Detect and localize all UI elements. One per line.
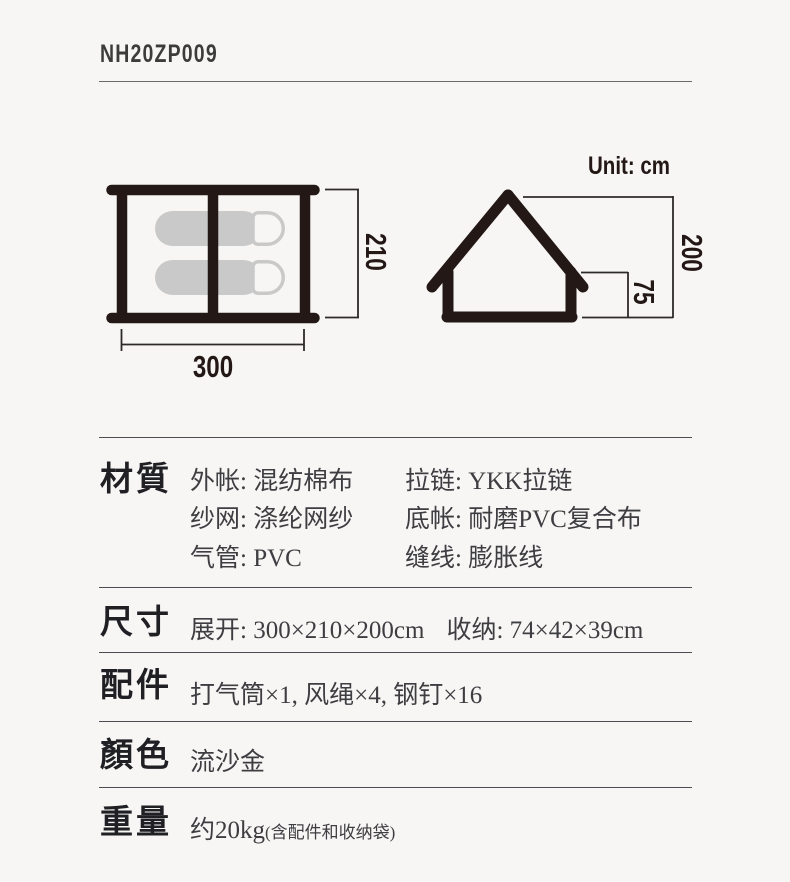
dimension-wall-height: 75 [629,270,657,314]
material-mesh: 纱网: 涤纶网纱 [190,501,353,539]
material-outer-tent: 外帐: 混纺棉布 [190,463,353,501]
dimension-depth: 210 [361,222,389,281]
weight-label: 重量 [100,807,172,840]
material-seams: 缝线: 膨胀线 [405,540,642,578]
top-view-frame [112,187,315,321]
table-divider [99,587,692,588]
dimensions-value: 展开: 300×210×200cm收纳: 74×42×39cm [190,610,643,646]
unit-label: Unit: cm [588,152,670,181]
material-column-2: 拉链: YKK拉链 底帐: 耐磨PVC复合布 缝线: 膨胀线 [405,463,642,578]
dimensions-packed: 收纳: 74×42×39cm [446,617,643,644]
material-air-tube: 气管: PVC [190,540,353,578]
table-divider [99,787,692,788]
material-column-1: 外帐: 混纺棉布 纱网: 涤纶网纱 气管: PVC [190,463,353,578]
material-floor: 底帐: 耐磨PVC复合布 [405,501,642,539]
dimension-total-height: 200 [677,223,705,282]
weight-amount: 约20kg [190,817,265,844]
color-label: 顏色 [100,740,172,773]
accessories-label: 配件 [100,670,172,703]
table-divider [99,437,692,438]
spec-sheet: { "page": { "model_number": "NH20ZP009",… [0,0,790,882]
dimensions-deployed: 展开: 300×210×200cm [190,617,424,644]
sleeping-pad [155,211,283,246]
sleeping-pad [155,260,283,295]
material-label: 材質 [100,464,172,497]
dimensions-label: 尺寸 [100,607,172,640]
side-view-house-outline [432,195,583,317]
accessories-value: 打气筒×1, 风绳×4, 钢钉×16 [190,675,482,711]
material-zipper: 拉链: YKK拉链 [405,463,642,501]
weight-note: (含配件和收纳袋) [265,823,395,842]
table-divider [99,652,692,653]
color-value: 流沙金 [190,742,265,778]
dimension-width: 300 [182,352,244,382]
weight-value: 约20kg(含配件和收纳袋) [190,810,395,846]
table-divider [99,721,692,722]
